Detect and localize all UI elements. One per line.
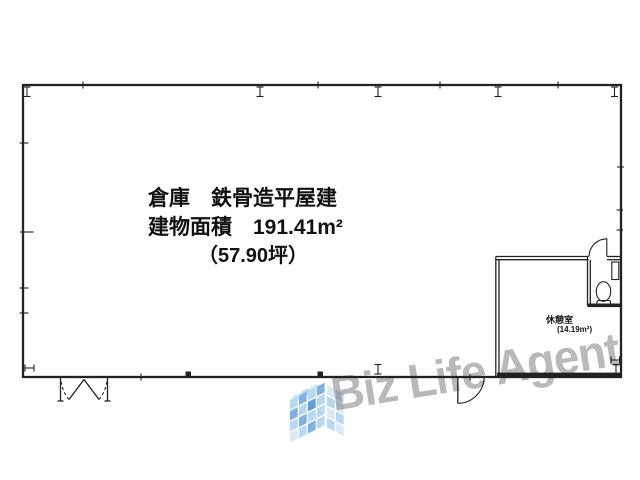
building-label-line3: （57.90坪）	[198, 242, 343, 271]
room-label: 休憩室 (14.19m²)	[546, 315, 592, 335]
room-name: 休憩室	[546, 315, 592, 325]
floor-plan-page: Biz Life Agent	[0, 0, 640, 480]
building-label-line2: 建物面積 191.41m²	[148, 214, 343, 243]
room-area: (14.19m²)	[557, 325, 592, 335]
building-label-line1: 倉庫 鉄骨造平屋建	[148, 185, 343, 214]
building-label: 倉庫 鉄骨造平屋建 建物面積 191.41m² （57.90坪）	[148, 185, 343, 271]
label-layer: 倉庫 鉄骨造平屋建 建物面積 191.41m² （57.90坪） 休憩室 (14…	[0, 0, 640, 480]
